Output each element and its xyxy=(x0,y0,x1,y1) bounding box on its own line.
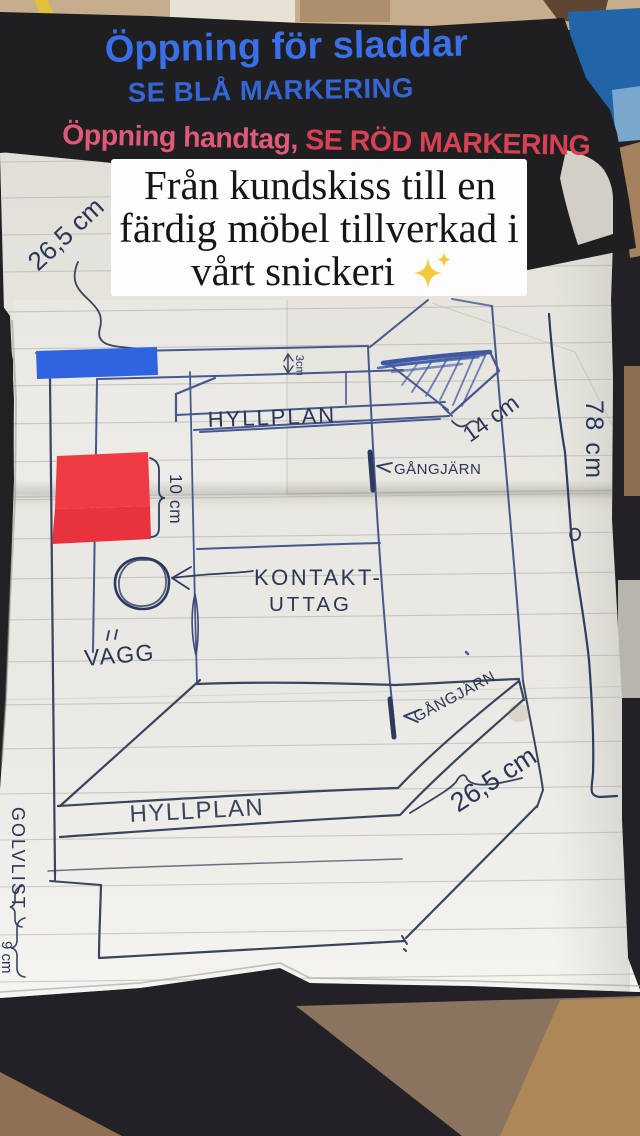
svg-text:3cm: 3cm xyxy=(293,355,306,376)
svg-text:10 cm: 10 cm xyxy=(166,474,186,524)
svg-text:Öppning för sladdar: Öppning för sladdar xyxy=(104,22,468,71)
svg-text:HYLLPLAN: HYLLPLAN xyxy=(207,403,336,432)
svg-text:78 cm: 78 cm xyxy=(580,400,608,481)
svg-text:SE BLÅ MARKERING: SE BLÅ MARKERING xyxy=(128,72,415,108)
svg-text:GÅNGJÄRN: GÅNGJÄRN xyxy=(394,461,481,478)
svg-text:Från kundskiss till en: Från kundskiss till en xyxy=(144,162,496,208)
svg-text:färdig möbel tillverkad i: färdig möbel tillverkad i xyxy=(119,205,519,251)
svg-text:GOLVLIST: GOLVLIST xyxy=(8,807,28,910)
svg-text:vårt snickeri: vårt snickeri xyxy=(191,248,395,294)
svg-text:KONTAKT-: KONTAKT- xyxy=(254,565,382,590)
svg-text:9 cm: 9 cm xyxy=(0,941,15,974)
svg-text:UTTAG: UTTAG xyxy=(269,593,352,616)
